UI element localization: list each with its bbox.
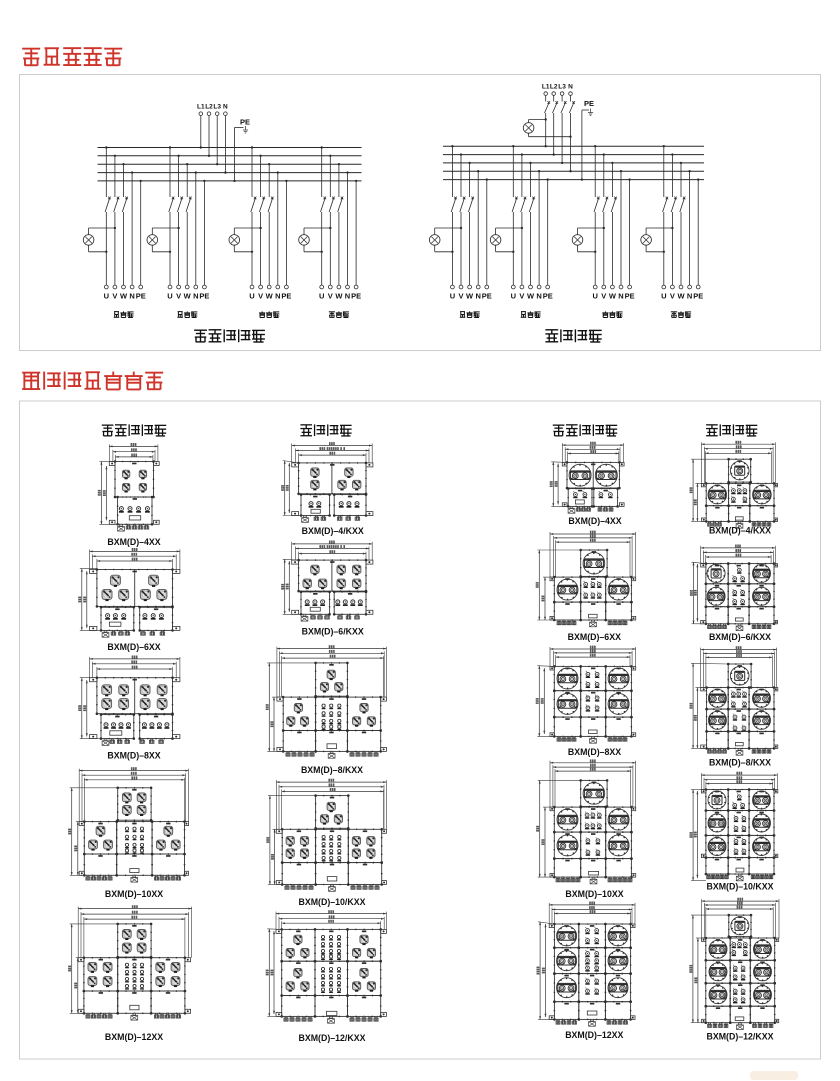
svg-text:BXM(D)–10XX: BXM(D)–10XX — [565, 889, 623, 899]
svg-text:V: V — [176, 292, 181, 301]
svg-text:W: W — [609, 292, 617, 301]
svg-text:V: V — [328, 292, 333, 301]
svg-text:PE: PE — [693, 292, 703, 301]
svg-text:BXM(D)–8/KXX: BXM(D)–8/KXX — [301, 765, 363, 775]
svg-text:BXM(D)–10/KXX: BXM(D)–10/KXX — [299, 897, 366, 907]
svg-text:L1: L1 — [542, 84, 550, 91]
svg-text:N: N — [193, 292, 198, 301]
svg-text:U: U — [592, 292, 597, 301]
svg-text:N: N — [618, 292, 623, 301]
svg-text:V: V — [519, 292, 524, 301]
svg-text:U: U — [104, 292, 109, 301]
svg-text:W: W — [266, 292, 274, 301]
svg-text:L3: L3 — [213, 104, 221, 111]
svg-text:W: W — [527, 292, 535, 301]
svg-text:PE: PE — [281, 292, 291, 301]
svg-text:PE: PE — [625, 292, 635, 301]
svg-text:W: W — [677, 292, 685, 301]
svg-text:BXM(D)–6/KXX: BXM(D)–6/KXX — [302, 627, 364, 637]
svg-text:N: N — [687, 292, 692, 301]
svg-text:PE: PE — [482, 292, 492, 301]
svg-text:BXM(D)–6XX: BXM(D)–6XX — [107, 642, 160, 652]
svg-text:N: N — [475, 292, 480, 301]
svg-text:L3: L3 — [558, 84, 566, 91]
svg-text:BXM(D)–8XX: BXM(D)–8XX — [107, 751, 160, 761]
svg-text:W: W — [335, 292, 343, 301]
svg-text:N: N — [129, 292, 134, 301]
svg-text:N: N — [223, 104, 228, 111]
svg-text:L2: L2 — [205, 104, 213, 111]
svg-text:BXM(D)–8XX: BXM(D)–8XX — [568, 747, 621, 757]
svg-text:U: U — [450, 292, 455, 301]
svg-text:L1: L1 — [197, 104, 205, 111]
svg-text:L2: L2 — [550, 84, 558, 91]
svg-text:PE: PE — [240, 118, 250, 127]
svg-text:N: N — [345, 292, 350, 301]
svg-text:PE: PE — [136, 292, 146, 301]
svg-text:V: V — [670, 292, 675, 301]
svg-text:BXM(D)–10XX: BXM(D)–10XX — [105, 889, 163, 899]
svg-text:BXM(D)–6XX: BXM(D)–6XX — [568, 632, 621, 642]
svg-text:V: V — [258, 292, 263, 301]
svg-text:V: V — [601, 292, 606, 301]
svg-text:PE: PE — [543, 292, 553, 301]
svg-text:N: N — [536, 292, 541, 301]
svg-text:PE: PE — [199, 292, 209, 301]
svg-text:V: V — [458, 292, 463, 301]
svg-text:N: N — [275, 292, 280, 301]
svg-text:BXM(D)–4/KXX: BXM(D)–4/KXX — [302, 526, 364, 536]
svg-text:BXM(D)–4XX: BXM(D)–4XX — [568, 516, 621, 526]
svg-text:W: W — [184, 292, 192, 301]
svg-text:PE: PE — [584, 99, 594, 108]
svg-text:U: U — [319, 292, 324, 301]
svg-text:W: W — [466, 292, 474, 301]
svg-text:V: V — [112, 292, 117, 301]
svg-text:U: U — [249, 292, 254, 301]
svg-text:BXM(D)–12XX: BXM(D)–12XX — [105, 1032, 163, 1042]
svg-text:BXM(D)–12/KXX: BXM(D)–12/KXX — [299, 1033, 366, 1043]
svg-text:U: U — [661, 292, 666, 301]
svg-text:N: N — [568, 84, 573, 91]
svg-text:U: U — [511, 292, 516, 301]
svg-text:U: U — [167, 292, 172, 301]
svg-text:BXM(D)–4XX: BXM(D)–4XX — [107, 537, 160, 547]
svg-text:BXM(D)–12XX: BXM(D)–12XX — [565, 1030, 623, 1040]
svg-text:W: W — [120, 292, 128, 301]
svg-text:PE: PE — [351, 292, 361, 301]
